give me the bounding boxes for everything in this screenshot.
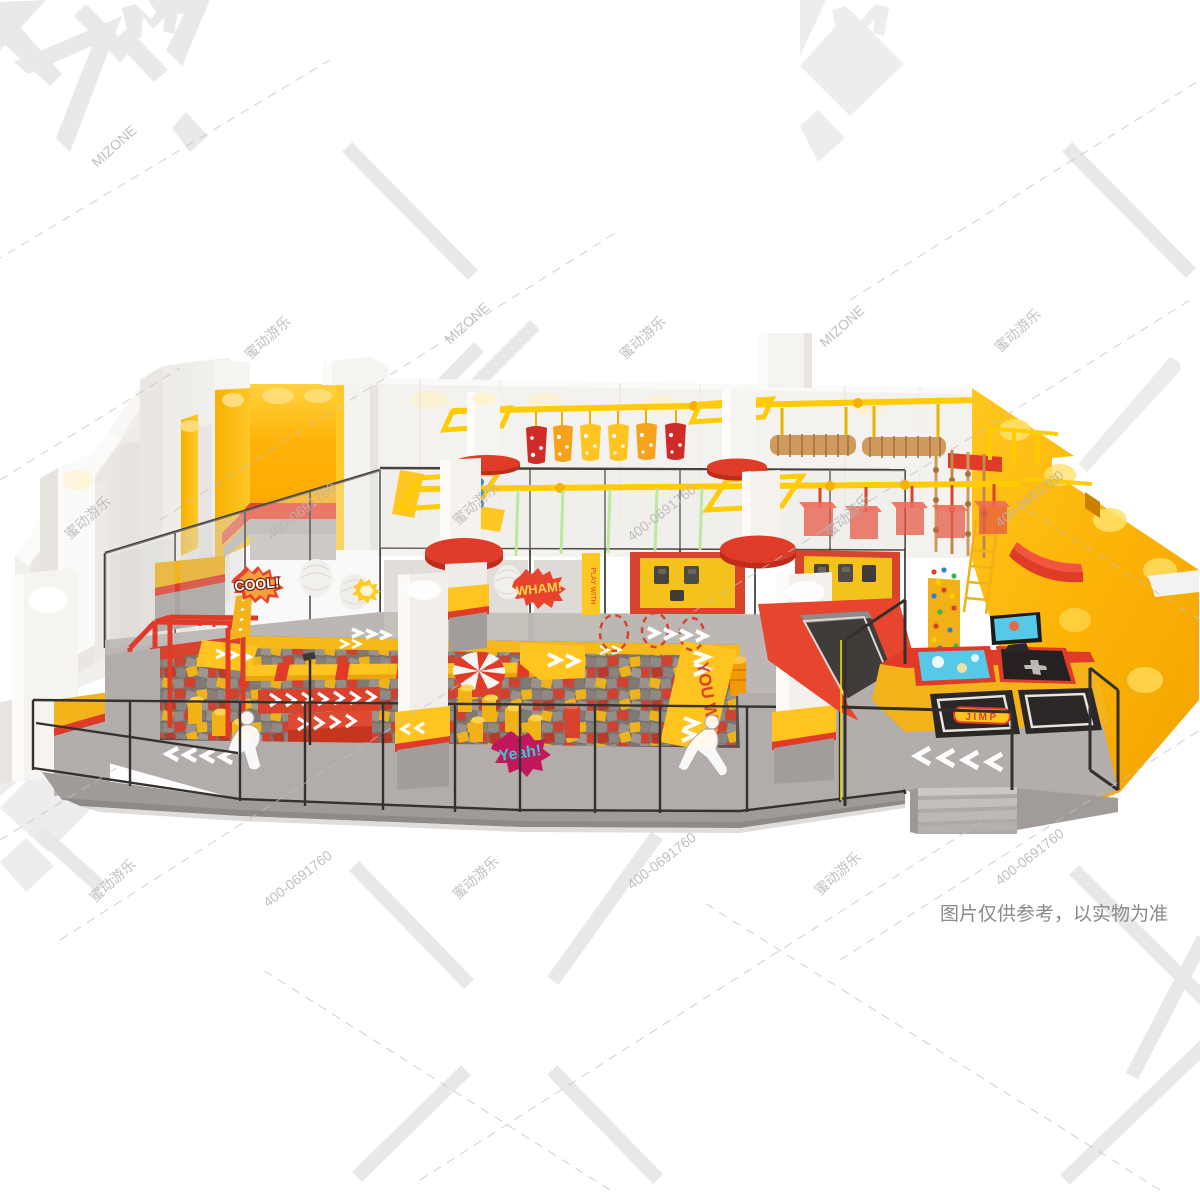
svg-text:图片仅供参考，以实物为准: 图片仅供参考，以实物为准 (940, 903, 1168, 925)
svg-text:PLAY WITH: PLAY WITH (589, 567, 596, 604)
svg-text:JIMP: JIMP (965, 712, 998, 723)
